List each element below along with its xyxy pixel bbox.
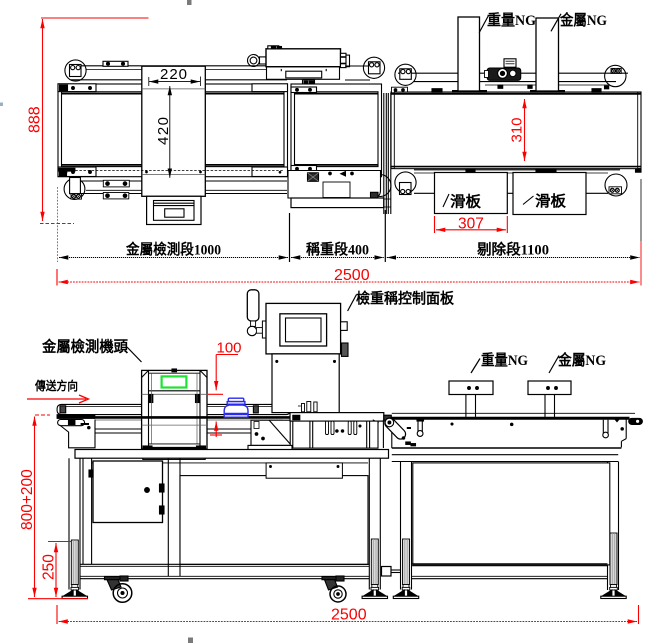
- svg-text:滑板: 滑板: [535, 192, 567, 210]
- svg-text:重量NG: 重量NG: [481, 351, 528, 369]
- svg-text:100: 100: [217, 340, 242, 357]
- svg-text:剔除段1100: 剔除段1100: [476, 241, 549, 259]
- svg-text:重量NG: 重量NG: [487, 11, 536, 29]
- svg-text:800+200: 800+200: [19, 469, 36, 530]
- svg-text:307: 307: [458, 216, 484, 233]
- svg-text:金屬NG: 金屬NG: [559, 11, 607, 29]
- svg-text:888: 888: [27, 106, 44, 133]
- svg-text:傳送方向: 傳送方向: [34, 378, 78, 393]
- svg-text:220: 220: [160, 66, 187, 83]
- svg-text:檢重稱控制面板: 檢重稱控制面板: [356, 290, 454, 308]
- svg-text:稱重段400: 稱重段400: [306, 241, 369, 259]
- svg-text:金屬檢測段1000: 金屬檢測段1000: [125, 241, 221, 259]
- svg-text:420: 420: [155, 117, 172, 145]
- svg-text:2500: 2500: [331, 607, 367, 624]
- svg-text:金屬NG: 金屬NG: [557, 351, 606, 369]
- svg-text:滑板: 滑板: [450, 193, 482, 211]
- svg-text:2500: 2500: [334, 267, 370, 284]
- svg-text:250: 250: [41, 554, 58, 580]
- svg-text:金屬檢測機頭: 金屬檢測機頭: [41, 338, 129, 356]
- svg-text:310: 310: [509, 117, 526, 142]
